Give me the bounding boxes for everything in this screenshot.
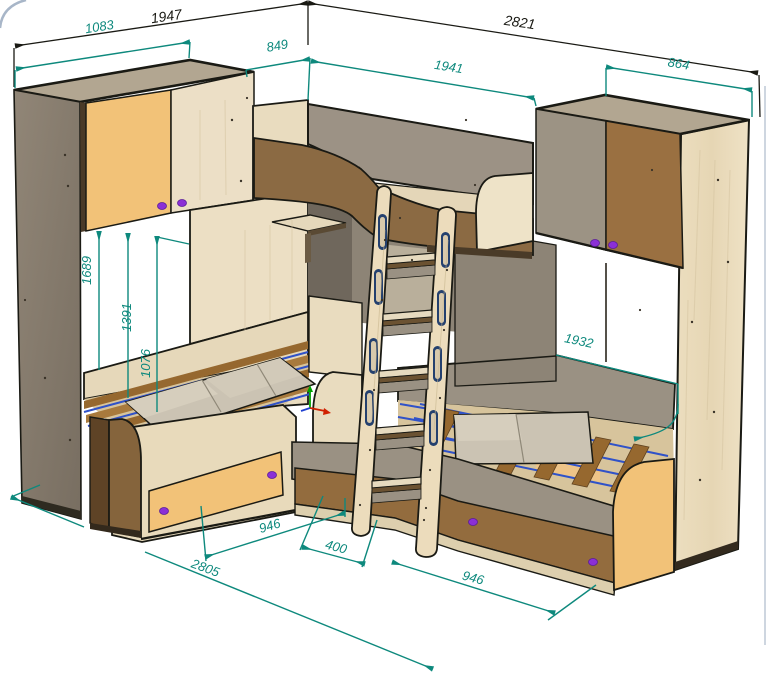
svg-text:1689: 1689 <box>79 256 94 285</box>
svg-text:1391: 1391 <box>119 303 134 332</box>
svg-text:1076: 1076 <box>138 348 153 378</box>
